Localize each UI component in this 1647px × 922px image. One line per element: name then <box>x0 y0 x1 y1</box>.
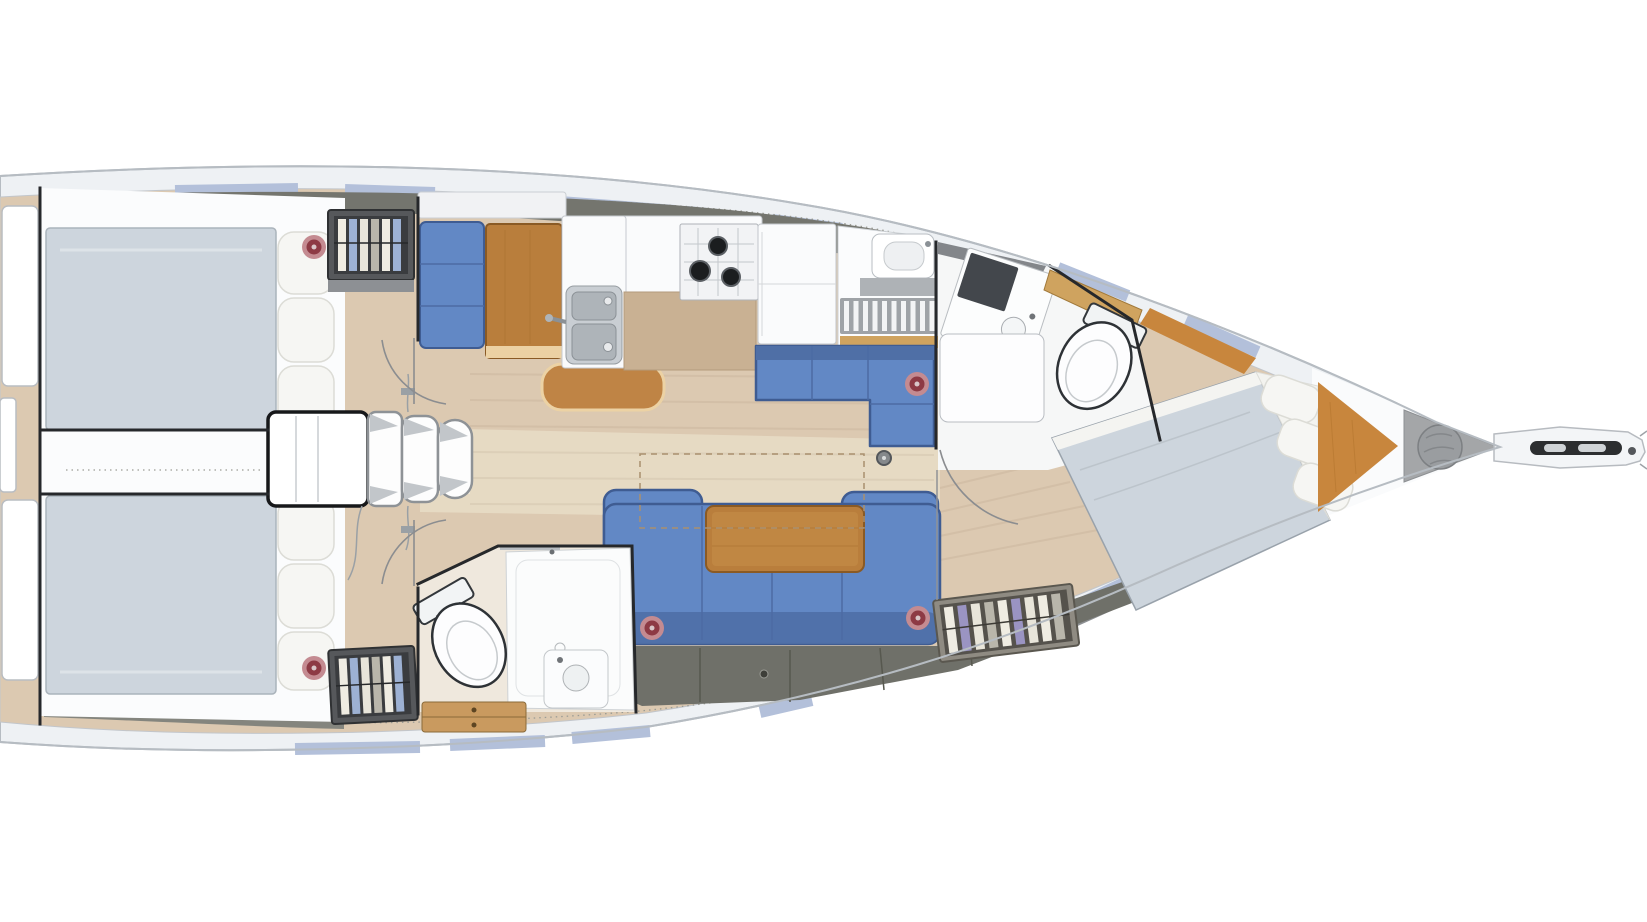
port-table-trim <box>486 346 562 358</box>
sink-faucet-base <box>545 314 553 322</box>
drawer-knob <box>472 708 477 713</box>
hanging-locker-port <box>328 210 414 292</box>
pillow <box>278 564 334 628</box>
hanging-clothes <box>334 219 408 271</box>
swim-platform-panel <box>2 500 38 680</box>
wardrobe-shelf <box>328 280 414 292</box>
washbasin-bowl <box>884 242 924 270</box>
aft-cabin-port <box>46 228 334 430</box>
burner <box>709 237 727 255</box>
clothes-stripe <box>349 219 357 271</box>
clothes-stripe <box>338 219 346 271</box>
double-berth <box>46 496 276 694</box>
berth-pillows <box>278 232 334 426</box>
double-berth <box>46 228 276 430</box>
pillow <box>278 298 334 362</box>
drawer-knob <box>472 723 477 728</box>
clothes-stripe <box>371 219 379 271</box>
speaker-dot <box>312 245 317 250</box>
speaker <box>906 606 930 630</box>
speaker-dot <box>916 616 921 621</box>
wire-clip <box>401 526 415 533</box>
door-handle <box>550 550 555 555</box>
companionway-steps <box>368 412 472 506</box>
basin-faucet <box>925 241 931 247</box>
sideboard <box>418 192 566 218</box>
floor-plan-canvas <box>0 0 1647 922</box>
open-door-panel <box>940 334 1044 422</box>
speaker <box>302 656 326 680</box>
swim-platform-panel <box>2 206 38 386</box>
speaker-dot <box>915 382 920 387</box>
wet-counter <box>860 278 936 296</box>
mast-post <box>877 451 891 465</box>
deck-window <box>175 189 298 191</box>
sink-drain <box>604 297 612 305</box>
head-washbasin-bowl <box>563 665 589 691</box>
bow-fitting <box>1628 447 1636 455</box>
locker-knob <box>760 670 768 678</box>
galley-front-panel <box>624 292 756 370</box>
head-faucet <box>557 657 563 663</box>
anchor-roller <box>1530 441 1622 455</box>
sink-basin-small <box>572 292 616 320</box>
clothes-stripe <box>360 219 368 271</box>
hanging-locker-starboard <box>328 646 418 724</box>
speaker <box>640 616 664 640</box>
speaker-dot <box>650 626 655 631</box>
clothes-stripe <box>382 219 390 271</box>
speaker-dot <box>312 666 317 671</box>
port-table <box>486 224 562 358</box>
l-settee-back <box>756 346 934 360</box>
roller-slot <box>1578 444 1606 452</box>
mast-post-top <box>882 456 886 460</box>
yacht-floor-plan <box>0 0 1647 922</box>
burner <box>690 261 710 281</box>
aft-cabin-starboard <box>46 496 334 694</box>
sink-drain <box>604 343 613 352</box>
movable-bench <box>542 364 664 410</box>
speaker <box>905 372 929 396</box>
burner <box>722 268 740 286</box>
saloon-table-sheen <box>712 512 858 566</box>
sink-basin-large <box>572 324 616 360</box>
port-settee <box>420 222 484 348</box>
speaker <box>302 235 326 259</box>
wet-area <box>838 226 938 350</box>
clothes-stripe <box>393 219 401 271</box>
roller-slot <box>1544 444 1566 452</box>
transom-locker <box>0 398 16 492</box>
